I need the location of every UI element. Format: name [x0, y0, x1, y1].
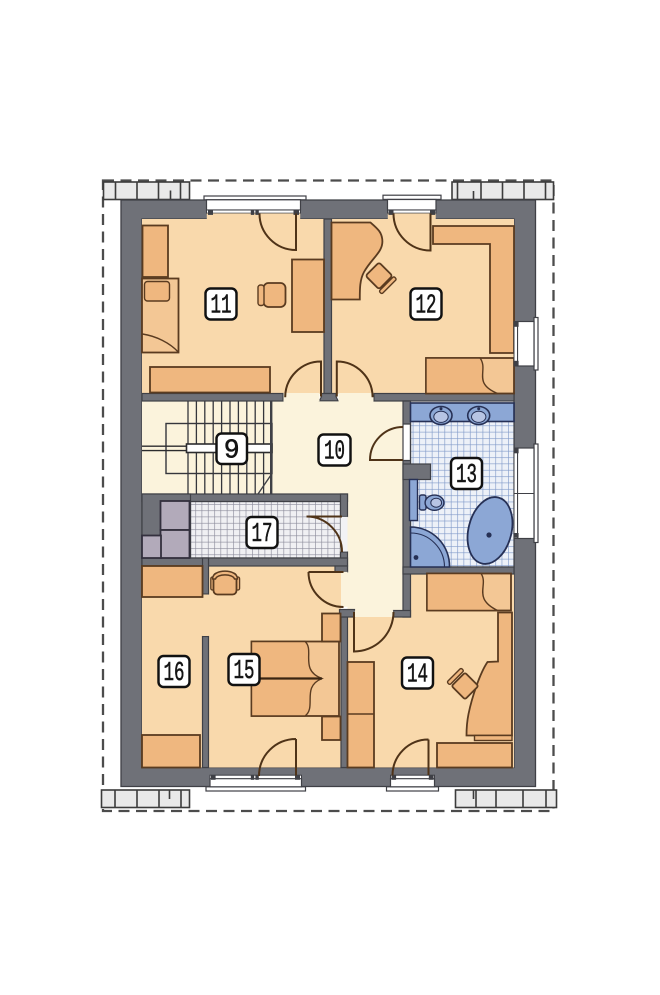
- svg-text:15: 15: [234, 656, 255, 686]
- svg-text:17: 17: [252, 519, 273, 549]
- svg-text:9: 9: [224, 436, 240, 466]
- svg-text:11: 11: [211, 291, 232, 321]
- svg-text:13: 13: [456, 460, 477, 490]
- svg-text:14: 14: [407, 660, 428, 690]
- svg-text:10: 10: [324, 437, 345, 467]
- svg-text:16: 16: [164, 658, 185, 688]
- svg-text:12: 12: [416, 291, 437, 321]
